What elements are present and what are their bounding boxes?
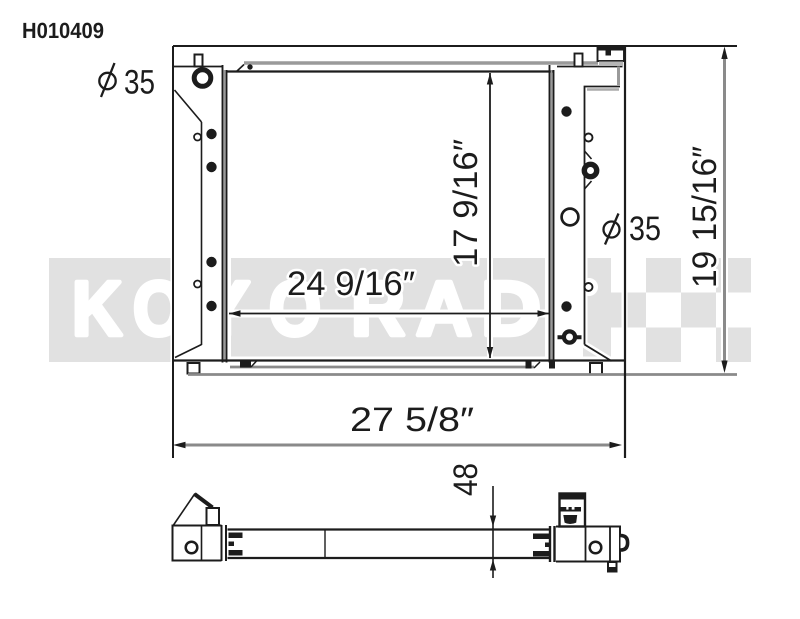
svg-text:24 9/16″: 24 9/16″ (287, 265, 415, 303)
svg-text:35: 35 (124, 64, 155, 102)
svg-text:H010409: H010409 (22, 18, 104, 43)
svg-text:17 9/16″: 17 9/16″ (447, 139, 485, 267)
svg-text:48: 48 (447, 463, 485, 496)
svg-text:27 5/8″: 27 5/8″ (350, 401, 474, 439)
svg-text:K: K (72, 266, 122, 352)
svg-text:35: 35 (629, 210, 661, 248)
svg-text:A: A (416, 266, 472, 352)
svg-text:19 15/16″: 19 15/16″ (686, 146, 724, 288)
